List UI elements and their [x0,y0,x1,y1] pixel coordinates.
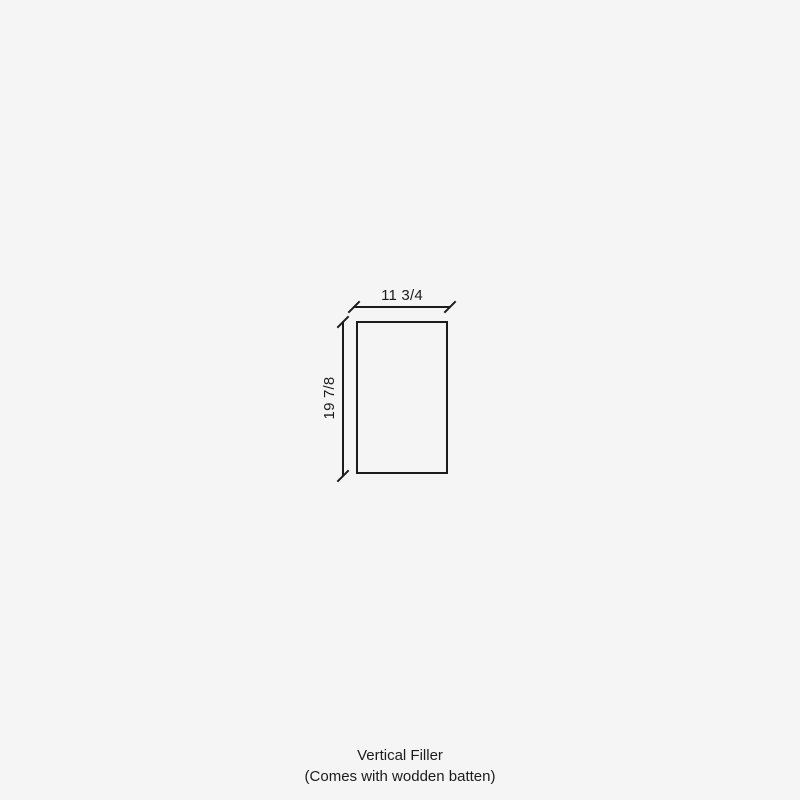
caption-subtitle: (Comes with wodden batten) [0,766,800,787]
part-outline-rect [356,321,448,474]
caption-title: Vertical Filler [0,745,800,766]
height-dimension-line [342,322,344,476]
diagram-canvas: 11 3/4 19 7/8 Vertical Filler (Comes wit… [0,0,800,800]
caption: Vertical Filler (Comes with wodden batte… [0,745,800,787]
width-dimension-line [354,306,450,308]
width-dimension-label: 11 3/4 [353,287,451,304]
height-dimension-label: 19 7/8 [321,321,339,475]
